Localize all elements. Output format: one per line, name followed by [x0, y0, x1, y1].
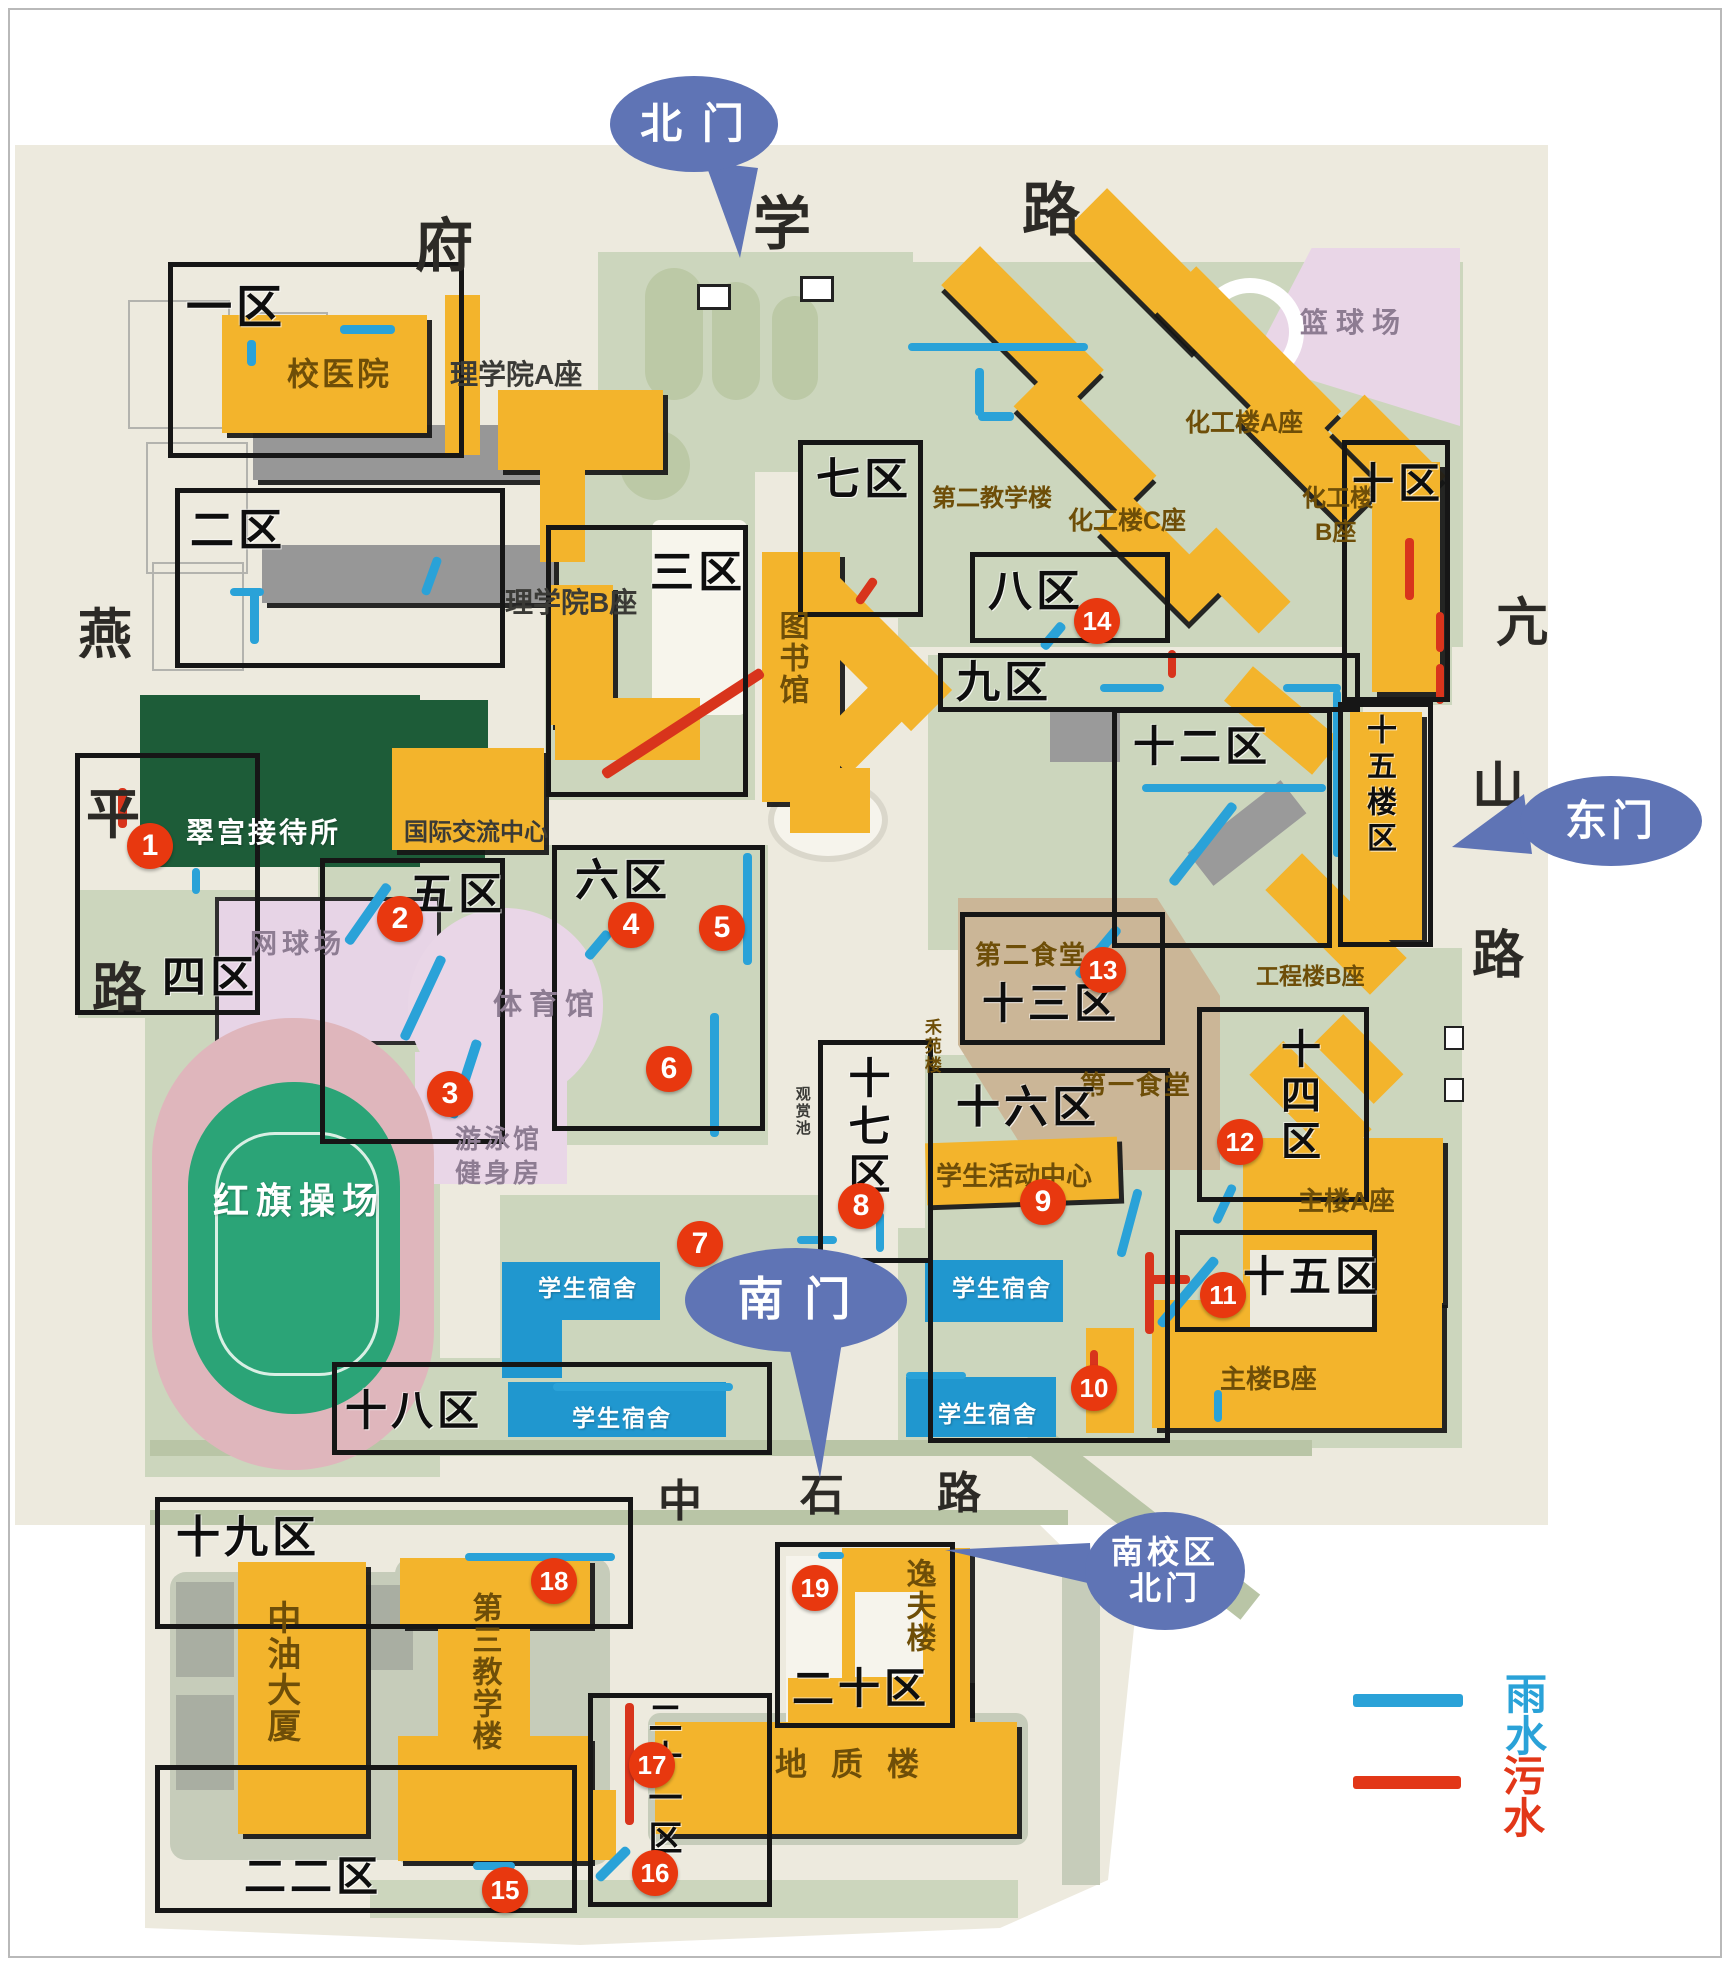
sewage-line-swatch: [1353, 1776, 1461, 1789]
marker-9: 9: [1020, 1179, 1066, 1225]
campus-map: 雨水 污水 一区二区三区四区五区六区七区八区九区十区十二区十三区十四区十五区十六…: [0, 0, 1730, 1966]
south-campus-north-gate-label: 北门: [1129, 1571, 1201, 1607]
gate-bubble-south-gate: 南 门: [685, 1248, 907, 1352]
north-gate-tail: [705, 162, 758, 258]
rain-legend-label: 雨水: [1505, 1674, 1553, 1758]
marker-1: 1: [127, 823, 173, 869]
marker-17: 17: [629, 1742, 675, 1788]
marker-11: 11: [1200, 1272, 1246, 1318]
gate-bubble-tails: [0, 0, 1730, 1966]
rain-line-swatch: [1353, 1694, 1463, 1707]
marker-8: 8: [838, 1183, 884, 1229]
marker-10: 10: [1071, 1365, 1117, 1411]
east-gate-label: 东门: [1565, 797, 1657, 844]
south-campus-north-gate-label: 南校区: [1111, 1535, 1219, 1571]
marker-7: 7: [677, 1221, 723, 1267]
marker-18: 18: [531, 1558, 577, 1604]
sewage-legend-label: 污水: [1503, 1756, 1551, 1840]
marker-19: 19: [792, 1565, 838, 1611]
marker-15: 15: [482, 1867, 528, 1913]
marker-13: 13: [1080, 947, 1126, 993]
marker-6: 6: [646, 1046, 692, 1092]
marker-3: 3: [427, 1071, 473, 1117]
gate-bubble-south-campus-north-gate: 南校区北门: [1085, 1512, 1245, 1630]
marker-2: 2: [377, 896, 423, 942]
south-campus-north-gate-tail: [945, 1543, 1092, 1584]
gate-bubble-north-gate: 北 门: [610, 76, 778, 172]
marker-5: 5: [699, 905, 745, 951]
marker-12: 12: [1217, 1119, 1263, 1165]
south-gate-label: 南 门: [738, 1274, 855, 1326]
marker-14: 14: [1074, 598, 1120, 644]
gate-bubble-east-gate: 东门: [1520, 776, 1702, 866]
south-gate-tail: [788, 1342, 842, 1478]
north-gate-label: 北 门: [640, 100, 748, 147]
marker-16: 16: [632, 1850, 678, 1896]
marker-4: 4: [608, 902, 654, 948]
